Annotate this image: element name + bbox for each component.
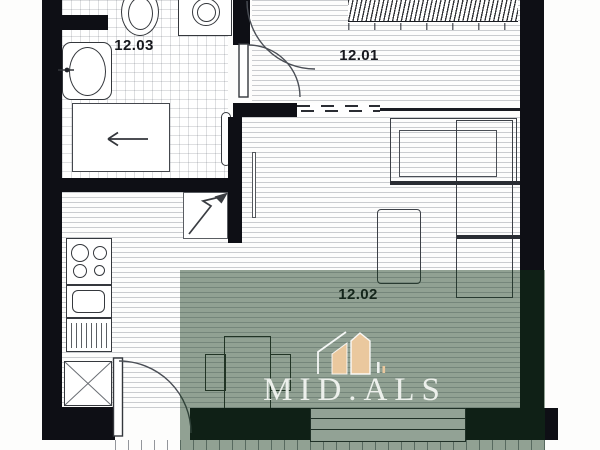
entrance-arrow: [189, 197, 222, 235]
room-label-bathroom: 12.03: [105, 37, 163, 54]
bathroom-door-arc: [248, 45, 300, 97]
bathroom-door-leaf: [239, 44, 248, 97]
watermark-brand-text: MID.ALS: [252, 372, 458, 409]
balcony-door-leaf: [114, 358, 123, 436]
entrance-arrow-head: [215, 193, 229, 204]
floor-plan: 12.03 12.01 12.02 MID.ALS: [0, 0, 600, 450]
shower-direction-arrow: [108, 133, 148, 146]
bedroom-door-arc: [247, 1, 315, 69]
fridge-cross: [65, 362, 111, 405]
room-label-bedroom: 12.01: [330, 47, 388, 64]
sink-tap-dot: [65, 68, 70, 73]
house-logo-icon: [310, 328, 390, 376]
